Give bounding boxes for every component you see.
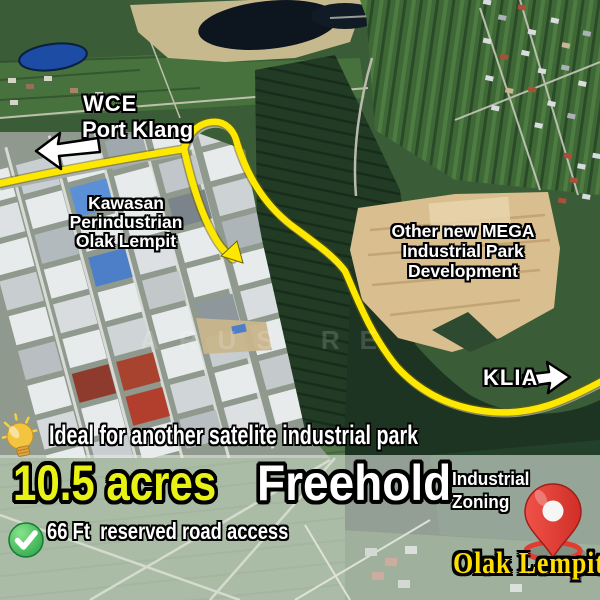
- label-kawasan-line3: Olak Lempit: [36, 232, 216, 251]
- zoning: Industrial Zoning: [452, 467, 529, 513]
- zoning-line1: Industrial: [452, 467, 529, 490]
- tenure: Freehold: [257, 456, 451, 510]
- tagline: Ideal for another satelite industrial pa…: [49, 421, 418, 450]
- area-size: 10.5 acres: [13, 456, 216, 510]
- check-circle-icon: [9, 523, 43, 557]
- watermark: ARUS RE: [140, 326, 397, 354]
- label-klia: KLIA: [483, 366, 538, 390]
- label-mega-line2: Industrial Park: [358, 241, 568, 261]
- label-wce: WCE: [83, 92, 137, 116]
- label-kawasan-line2: Perindustrian: [36, 213, 216, 232]
- property-flyer: ARUS RE WCE Port Klang Kawasan Perindust…: [0, 0, 600, 600]
- label-kawasan: Kawasan Perindustrian Olak Lempit: [36, 194, 216, 251]
- location-name: Olak Lempit: [453, 546, 600, 579]
- label-port-klang: Port Klang: [82, 118, 193, 142]
- label-kawasan-line1: Kawasan: [36, 194, 216, 213]
- zoning-line2: Zoning: [452, 490, 529, 513]
- label-mega-line1: Other new MEGA: [358, 221, 568, 241]
- label-mega: Other new MEGA Industrial Park Developme…: [358, 221, 568, 281]
- road-access: 66 Ft reserved road access: [47, 519, 288, 544]
- label-mega-line3: Development: [358, 261, 568, 281]
